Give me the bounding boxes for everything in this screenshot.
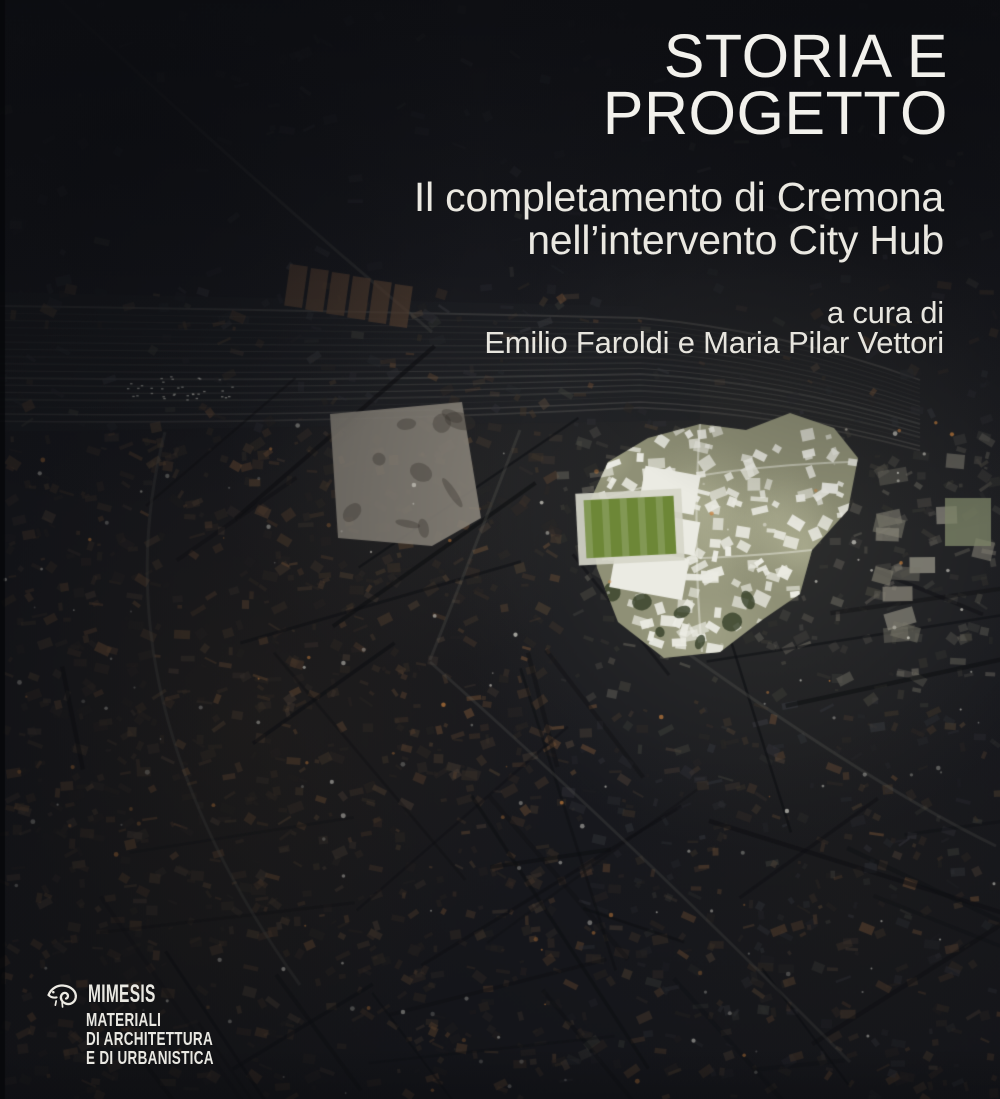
publisher-series: MATERIALI DI ARCHITETTURA E DI URBANISTI…: [86, 1011, 256, 1068]
series-line-1: MATERIALI: [86, 1011, 214, 1030]
series-line-2: DI ARCHITETTURA: [86, 1030, 214, 1049]
page-title: STORIA E PROGETTO: [603, 28, 948, 142]
byline: a cura di Emilio Faroldi e Maria Pilar V…: [484, 298, 944, 358]
cover-photo: [0, 0, 1000, 1099]
subtitle: Il completamento di Cremona nell’interve…: [414, 176, 944, 262]
subtitle-line-1: Il completamento di Cremona: [414, 176, 944, 219]
byline-prefix: a cura di: [484, 298, 944, 328]
title-line-2: PROGETTO: [603, 85, 948, 142]
title-line-1: STORIA E: [603, 28, 948, 85]
publisher-block: MIMESIS MATERIALI DI ARCHITETTURA E DI U…: [46, 980, 256, 1068]
chameleon-icon: [46, 982, 80, 1008]
publisher-head: MIMESIS: [46, 980, 256, 1009]
publisher-name: MIMESIS: [88, 980, 156, 1009]
series-line-3: E DI URBANISTICA: [86, 1049, 214, 1068]
subtitle-line-2: nell’intervento City Hub: [414, 219, 944, 262]
byline-authors: Emilio Faroldi e Maria Pilar Vettori: [484, 328, 944, 358]
book-cover: STORIA E PROGETTO Il completamento di Cr…: [0, 0, 1000, 1099]
